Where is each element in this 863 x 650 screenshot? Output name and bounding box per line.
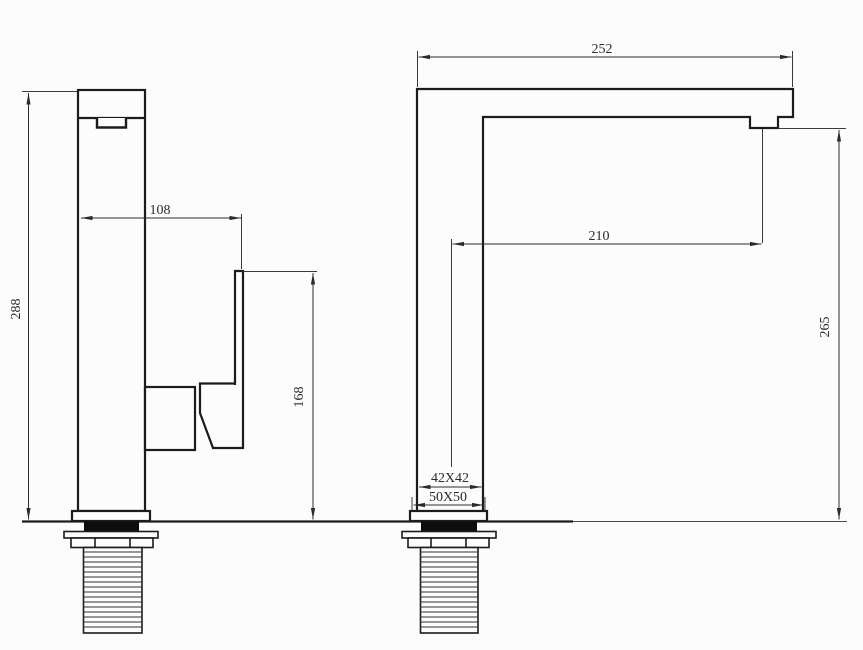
dim-252: 252 <box>418 42 793 87</box>
dim-label-265: 265 <box>818 317 833 338</box>
dim-label-168: 168 <box>292 387 307 408</box>
side-mounting-nut <box>408 538 489 548</box>
dim-label-288: 288 <box>9 299 24 320</box>
front-body <box>78 90 145 511</box>
front-washer <box>64 532 158 539</box>
front-view <box>64 90 243 633</box>
dim-210-extension-lines <box>452 129 763 467</box>
dim-265: 265 <box>778 129 846 520</box>
dim-210: 210 <box>452 129 763 467</box>
front-threaded-shank <box>84 548 143 634</box>
side-washer <box>402 532 496 539</box>
faucet-two-view-drawing: 288 108 168 252 210 <box>0 0 863 650</box>
side-view <box>402 89 793 633</box>
dim-288: 288 <box>9 92 77 520</box>
front-mounting-nut <box>71 538 153 548</box>
side-body-outline <box>417 89 793 511</box>
front-handle-stem <box>235 271 243 449</box>
side-rubber-seal <box>421 522 477 532</box>
dim-label-42x42: 42X42 <box>431 471 469 486</box>
dim-label-50x50: 50X50 <box>429 490 467 505</box>
technical-drawing-canvas: 288 108 168 252 210 <box>0 0 863 650</box>
front-handle-block <box>145 387 195 450</box>
front-base-flange <box>72 511 150 521</box>
dim-label-210: 210 <box>589 229 610 244</box>
front-aerator-notch <box>97 118 126 128</box>
side-threaded-shank <box>421 548 479 634</box>
side-base-flange <box>410 511 487 521</box>
dim-label-108: 108 <box>150 203 171 218</box>
front-rubber-seal <box>84 522 139 532</box>
dim-168: 168 <box>243 272 317 520</box>
front-handle-lever-detail <box>205 428 213 448</box>
front-handle-lever <box>200 384 243 449</box>
dim-label-252: 252 <box>592 42 613 57</box>
